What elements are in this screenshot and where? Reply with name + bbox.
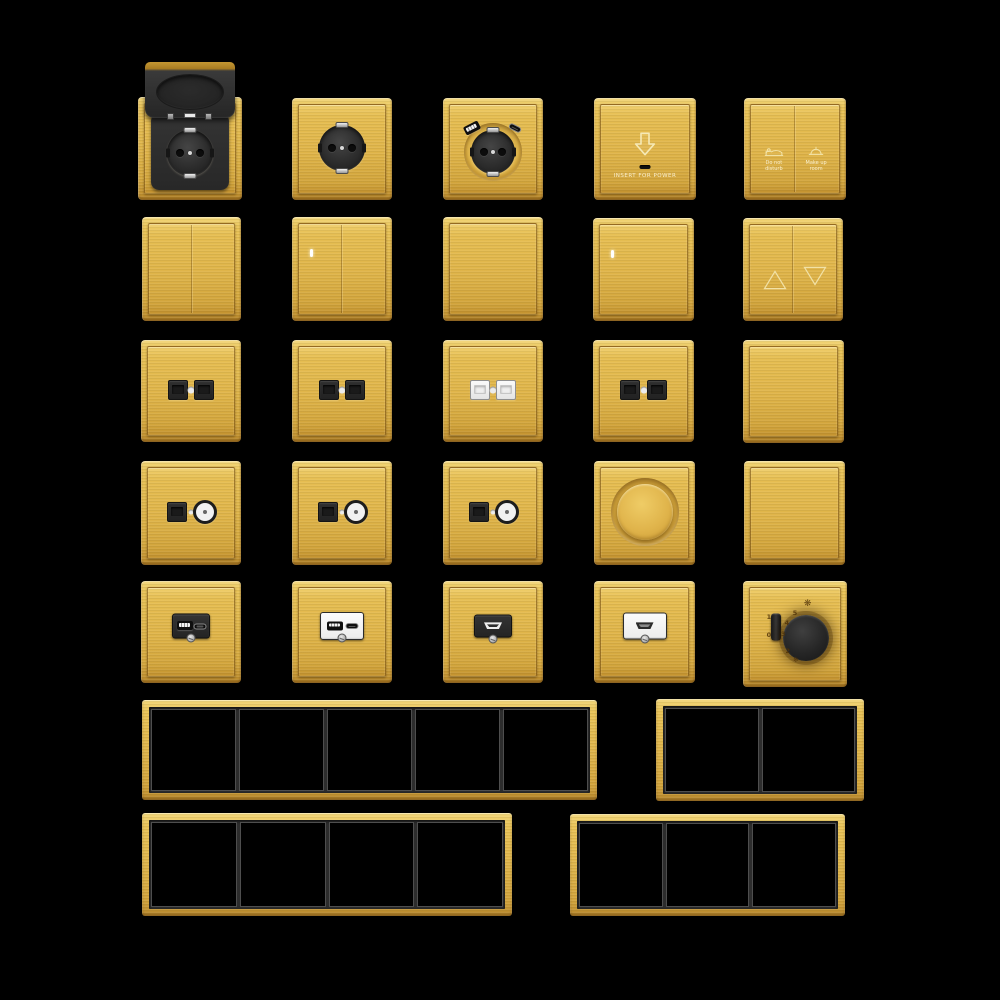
mount-screw — [338, 634, 347, 643]
frame-slot — [503, 709, 588, 791]
fan-icon: ❋ — [804, 599, 812, 609]
blank-plate[interactable] — [744, 461, 845, 565]
cover-plate — [147, 346, 235, 436]
blinds-down-icon — [802, 265, 827, 286]
jack-slot — [322, 507, 334, 516]
jack-slot — [171, 507, 183, 516]
mount-screw — [489, 635, 498, 644]
toggle-off-label: 0 — [767, 631, 772, 639]
jack-slot — [349, 385, 361, 394]
insert-card-arrow-icon — [629, 128, 661, 160]
earth-clip-top — [184, 127, 197, 133]
dial-4: 4 — [785, 619, 790, 627]
socket-schuko-usb[interactable] — [443, 98, 543, 200]
blank-plate[interactable] — [743, 340, 844, 443]
do-not-disturb-icon — [763, 144, 784, 158]
frame-slot — [151, 709, 236, 791]
rj45-jack — [470, 380, 490, 400]
cover-plate — [449, 104, 537, 194]
hdmi-port — [484, 622, 502, 629]
cover-plate — [449, 346, 537, 436]
rj45-jack — [647, 380, 667, 400]
flip-cover-lid[interactable] — [145, 62, 235, 118]
usb-charger-black[interactable] — [141, 581, 241, 683]
cover-plate — [298, 346, 386, 436]
frame-openings — [149, 707, 590, 793]
coax-tv-connector — [495, 500, 519, 524]
cover-plate — [749, 224, 837, 315]
frame-slot — [151, 822, 237, 907]
led-indicator — [310, 249, 313, 257]
rocker-divider — [794, 106, 796, 192]
frame-slot — [415, 709, 500, 791]
center-screw — [491, 150, 495, 154]
socket-data-tv[interactable] — [292, 461, 392, 565]
socket-schuko[interactable] — [292, 98, 392, 200]
frame-openings — [663, 706, 857, 794]
cover-plate — [298, 223, 386, 315]
frame-slot — [240, 822, 326, 907]
rj45-jack — [319, 380, 339, 400]
rj45-jack — [620, 380, 640, 400]
pin-hole-left — [480, 148, 488, 156]
earth-clip-bottom — [336, 168, 349, 174]
pin-hole-left — [176, 149, 184, 157]
socket-data-double-black[interactable] — [593, 340, 694, 442]
frame-slot — [579, 823, 663, 907]
mount-screw — [187, 634, 196, 643]
usb-c-port — [346, 623, 359, 629]
socket-data-double-black[interactable] — [141, 340, 241, 442]
dimmer-knob[interactable] — [617, 484, 673, 540]
jack-slot — [172, 385, 184, 394]
make-up-room-icon — [808, 144, 825, 158]
coax-tv-connector — [193, 500, 217, 524]
mount-screw — [640, 635, 649, 644]
cover-plate — [600, 467, 689, 559]
snowflake-icon: ❄ — [793, 656, 799, 664]
socket-housing — [151, 113, 229, 190]
product-collage: INSERT FOR POWERDo notdisturbMake uproom… — [0, 0, 1000, 1000]
jack-slot — [624, 385, 636, 394]
cover-plate — [600, 587, 689, 677]
side-notch — [470, 147, 474, 156]
side-notch — [210, 149, 214, 158]
dial-5: 5 — [793, 609, 798, 617]
frame-2gang[interactable] — [656, 699, 864, 801]
key-card-power-switch[interactable]: INSERT FOR POWER — [594, 98, 696, 200]
earth-clip-top — [336, 122, 349, 128]
switch-curtain[interactable] — [743, 218, 843, 321]
mur-label: Make uproom — [806, 159, 827, 172]
switch-2gang-led[interactable] — [292, 217, 392, 321]
usb-a-port — [327, 621, 343, 630]
side-notch — [318, 144, 322, 153]
rocker-divider — [341, 225, 343, 313]
frame-openings — [577, 821, 838, 909]
socket-data-double-white[interactable] — [443, 340, 543, 442]
rj45-jack — [318, 502, 338, 522]
frame-slot — [752, 823, 836, 907]
coax-pin — [505, 510, 509, 514]
switch-1gang[interactable] — [443, 217, 543, 321]
usb-charger-white[interactable] — [292, 581, 392, 683]
switch-dnd-mur[interactable]: Do notdisturbMake uproom — [744, 98, 846, 200]
usb-a-tongue — [329, 623, 340, 627]
frame-openings — [149, 820, 505, 909]
rj45-jack — [469, 502, 489, 522]
frame-4gang[interactable] — [142, 813, 512, 916]
switch-2gang[interactable] — [142, 217, 241, 321]
socket-data-tv[interactable] — [141, 461, 241, 565]
hinge-clip — [167, 113, 174, 120]
power-toggle[interactable] — [771, 613, 781, 640]
side-notch — [166, 149, 170, 158]
coax-tv-connector — [344, 500, 368, 524]
socket-schuko-flip-cover[interactable] — [138, 97, 242, 200]
hdmi-port — [636, 622, 654, 629]
earth-clip-bottom — [184, 173, 197, 179]
rocker-divider — [792, 226, 794, 313]
usb-a-port — [177, 621, 193, 630]
cover-plate — [599, 346, 688, 436]
frame-slot — [666, 823, 750, 907]
usb-c-pin — [196, 626, 203, 628]
hdmi-outlet-white[interactable] — [594, 581, 695, 683]
pin-hole-right — [498, 148, 506, 156]
rj45-jack — [168, 380, 188, 400]
hinge-clip — [205, 113, 212, 120]
frame-slot — [329, 822, 415, 907]
earth-clip-top — [487, 127, 500, 133]
center-screw — [340, 146, 344, 150]
dial-3: 3 — [781, 630, 786, 638]
led-indicator — [611, 250, 614, 258]
usb-a-tongue — [466, 123, 477, 131]
blinds-up-icon — [762, 270, 787, 291]
frame-5gang[interactable] — [142, 700, 597, 800]
frame-slot — [239, 709, 324, 791]
hdmi-outlet-black[interactable] — [443, 581, 543, 683]
cover-plate: 105432❄❋ — [749, 587, 841, 681]
center-screw — [188, 151, 192, 155]
jack-slot — [198, 385, 210, 394]
rj45-jack — [167, 502, 187, 522]
cover-plate — [298, 587, 386, 677]
schuko-socket — [319, 125, 365, 171]
toggle-on-label: 1 — [767, 613, 772, 621]
usb-c-pin — [511, 126, 518, 131]
usb-c-port — [193, 623, 206, 629]
jack-slot — [651, 385, 663, 394]
pin-hole-left — [328, 144, 336, 152]
pin-hole-right — [196, 149, 204, 157]
hdmi-pin-row — [487, 624, 499, 627]
jack-slot — [473, 507, 485, 516]
jack-slot — [474, 385, 486, 394]
frame-slot — [762, 708, 856, 792]
side-notch — [362, 144, 366, 153]
cover-plate — [298, 467, 386, 559]
cover-plate: INSERT FOR POWER — [600, 104, 690, 194]
fan-speed-controller[interactable]: 105432❄❋ — [743, 581, 847, 687]
socket-data-tv[interactable] — [443, 461, 543, 565]
cover-plate — [298, 104, 386, 194]
dnd-label: Do notdisturb — [765, 159, 783, 172]
cover-plate — [147, 587, 235, 677]
usb-a-tongue — [179, 623, 190, 627]
cover-plate — [749, 346, 838, 437]
card-slot-indicator — [640, 165, 651, 169]
frame-3gang[interactable] — [570, 814, 845, 916]
schuko-socket — [167, 130, 213, 176]
earth-clip-bottom — [487, 171, 500, 177]
cover-plate — [750, 467, 839, 559]
frame-slot — [665, 708, 759, 792]
rj45-jack — [194, 380, 214, 400]
frame-slot — [327, 709, 412, 791]
rj45-jack — [345, 380, 365, 400]
dial-2: 2 — [786, 647, 791, 655]
cover-plate — [599, 224, 688, 315]
lid-inner-oval — [156, 74, 224, 110]
cover-plate — [147, 467, 235, 559]
side-notch — [512, 147, 516, 156]
jack-slot — [323, 385, 335, 394]
socket-data-double-black[interactable] — [292, 340, 392, 442]
usb-c-pin — [349, 626, 356, 628]
jack-slot — [500, 385, 512, 394]
cover-plate — [449, 587, 537, 677]
switch-1gang-led[interactable] — [593, 218, 694, 321]
frame-slot — [417, 822, 503, 907]
hdmi-pin-row — [639, 624, 651, 627]
rj45-jack — [496, 380, 516, 400]
cover-plate — [449, 467, 537, 559]
lid-latch — [184, 113, 196, 118]
coax-pin — [354, 510, 358, 514]
cover-plate — [148, 223, 235, 315]
cover-plate — [449, 223, 537, 315]
pin-hole-right — [348, 144, 356, 152]
rocker-divider — [191, 225, 193, 313]
cover-plate: Do notdisturbMake uproom — [750, 104, 840, 194]
schuko-socket — [471, 130, 515, 174]
key-card-label: INSERT FOR POWER — [614, 173, 677, 179]
coax-pin — [203, 510, 207, 514]
dimmer-rotary[interactable] — [594, 461, 695, 565]
